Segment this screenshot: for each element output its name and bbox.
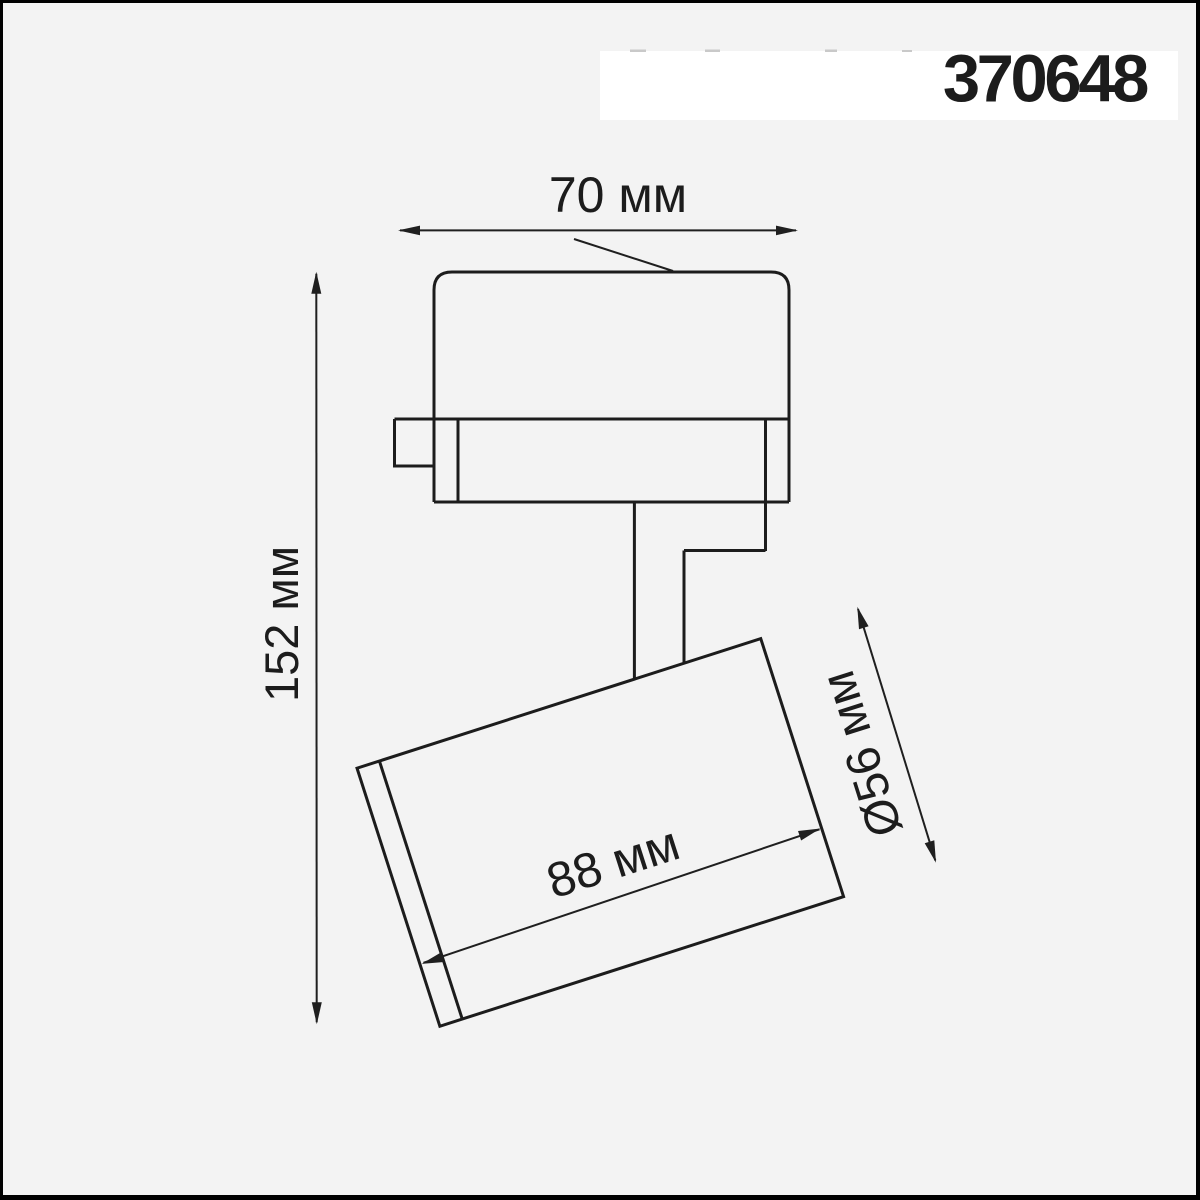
svg-text:152 мм: 152 мм bbox=[255, 546, 308, 702]
svg-text:370648: 370648 bbox=[943, 42, 1148, 117]
svg-text:70 мм: 70 мм bbox=[549, 167, 687, 223]
